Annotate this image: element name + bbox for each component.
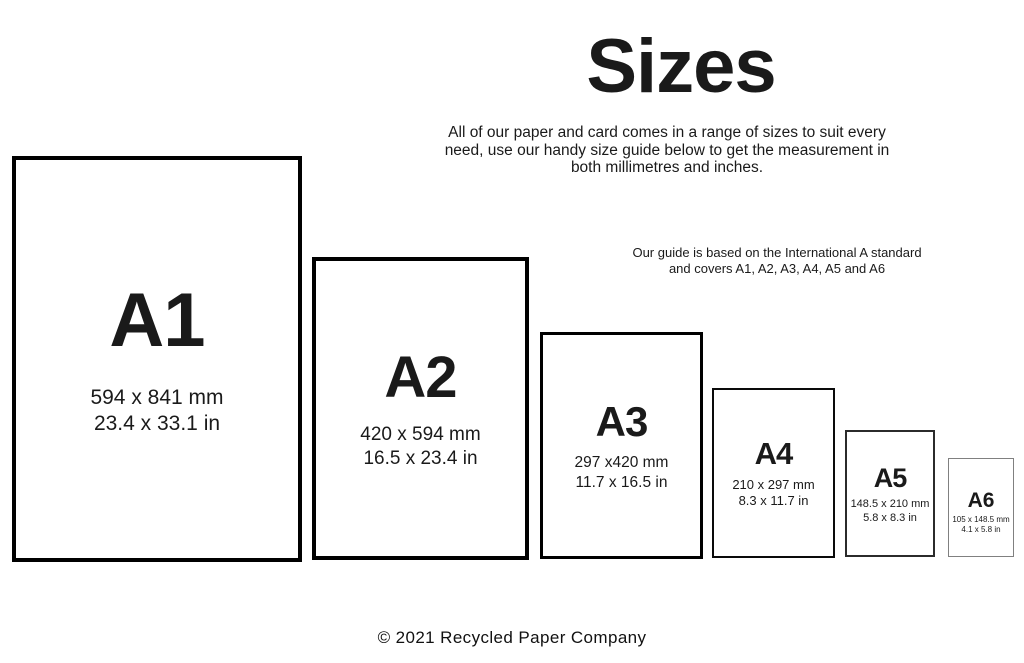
paper-inches-a5: 5.8 x 8.3 in <box>863 511 917 525</box>
paper-sizes-infographic: Sizes All of our paper and card comes in… <box>0 0 1024 663</box>
paper-box-a3: A3 297 x420 mm 11.7 x 16.5 in <box>540 332 703 559</box>
paper-label-a6: A6 <box>968 489 995 512</box>
paper-mm-a6: 105 x 148.5 mm <box>952 515 1009 525</box>
intro-text: All of our paper and card comes in a ran… <box>445 124 890 177</box>
paper-box-a5: A5 148.5 x 210 mm 5.8 x 8.3 in <box>845 430 935 557</box>
paper-mm-a1: 594 x 841 mm <box>90 385 223 411</box>
paper-box-a6: A6 105 x 148.5 mm 4.1 x 5.8 in <box>948 458 1014 557</box>
paper-inches-a4: 8.3 x 11.7 in <box>739 493 809 510</box>
standard-note-line-1: Our guide is based on the International … <box>632 245 921 261</box>
intro-text-line-3: both millimetres and inches. <box>445 159 890 177</box>
paper-label-a4: A4 <box>755 437 793 471</box>
intro-text-line-1: All of our paper and card comes in a ran… <box>445 124 890 142</box>
paper-box-a4: A4 210 x 297 mm 8.3 x 11.7 in <box>712 388 835 558</box>
paper-inches-a1: 23.4 x 33.1 in <box>94 411 220 437</box>
paper-mm-a2: 420 x 594 mm <box>360 423 480 447</box>
paper-label-a1: A1 <box>109 281 204 361</box>
copyright-text: © 2021 Recycled Paper Company <box>0 628 1024 648</box>
standard-note: Our guide is based on the International … <box>632 245 921 276</box>
paper-box-a2: A2 420 x 594 mm 16.5 x 23.4 in <box>312 257 529 560</box>
paper-label-a2: A2 <box>384 347 456 409</box>
intro-text-line-2: need, use our handy size guide below to … <box>445 142 890 160</box>
page-title: Sizes <box>586 26 775 108</box>
paper-mm-a5: 148.5 x 210 mm <box>851 497 930 511</box>
paper-inches-a3: 11.7 x 16.5 in <box>576 473 668 493</box>
paper-inches-a2: 16.5 x 23.4 in <box>363 447 477 471</box>
paper-box-a1: A1 594 x 841 mm 23.4 x 33.1 in <box>12 156 302 562</box>
paper-mm-a3: 297 x420 mm <box>575 453 669 473</box>
paper-mm-a4: 210 x 297 mm <box>732 477 814 494</box>
paper-inches-a6: 4.1 x 5.8 in <box>961 525 1000 535</box>
paper-label-a3: A3 <box>596 399 648 445</box>
standard-note-line-2: and covers A1, A2, A3, A4, A5 and A6 <box>632 261 921 277</box>
paper-label-a5: A5 <box>874 463 907 493</box>
